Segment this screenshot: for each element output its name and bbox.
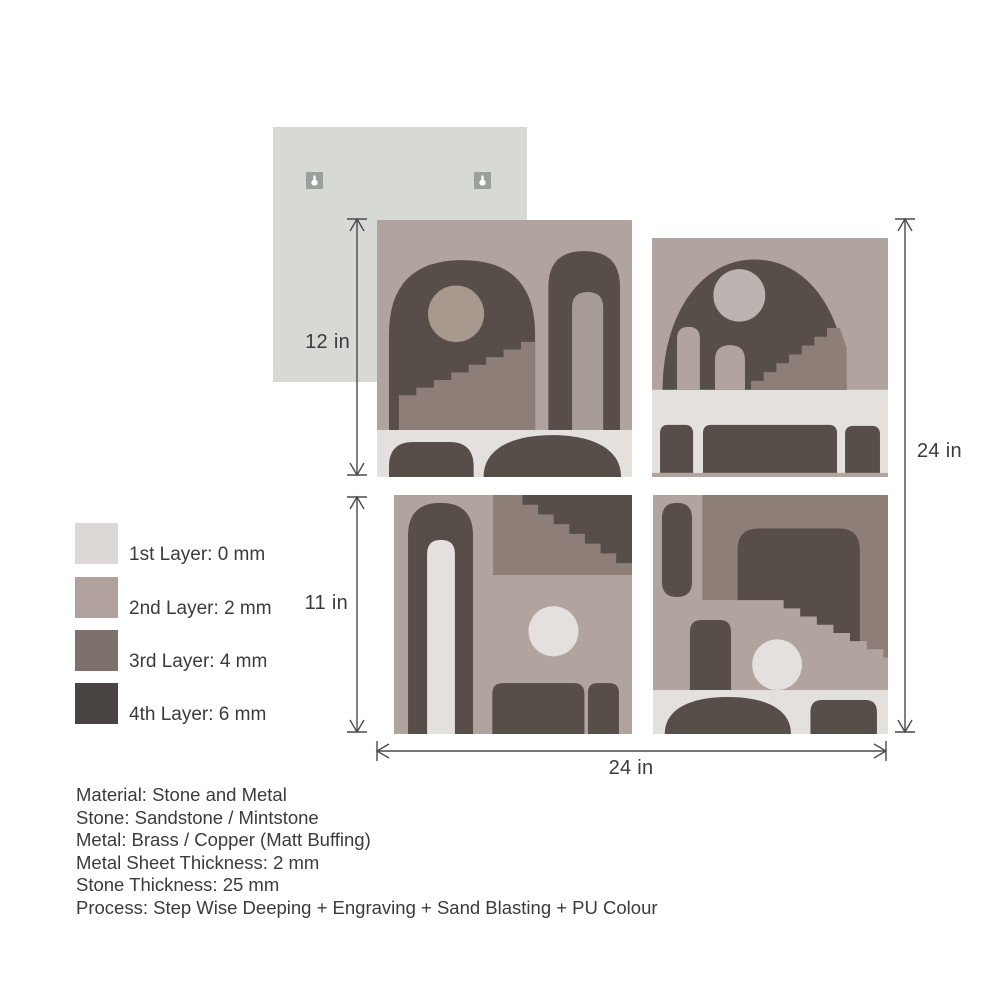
spec-line-stone-thickness: Stone Thickness: 25 mm: [76, 874, 658, 897]
product-spec-diagram: 12 in 11 in 24 in 24 in 1st Layer: 0 mm …: [0, 0, 1000, 1000]
legend-item: 2nd Layer: 2 mm: [75, 577, 272, 618]
legend-swatch-layer4: [75, 683, 118, 724]
wall-hook-icon: [306, 172, 323, 189]
legend-swatch-layer1: [75, 523, 118, 564]
legend-item: 3rd Layer: 4 mm: [75, 630, 267, 671]
dimension-arrow-24in-height: [895, 219, 915, 732]
legend-label: 1st Layer: 0 mm: [129, 545, 265, 566]
keyhole-icon: [474, 172, 491, 189]
legend-label: 3rd Layer: 4 mm: [129, 652, 267, 673]
legend-swatch-layer3: [75, 630, 118, 671]
dim-label-12in: 12 in: [305, 331, 350, 354]
legend-swatch-layer2: [75, 577, 118, 618]
keyhole-icon: [306, 172, 323, 189]
artwork-tile-top-right: [652, 238, 888, 477]
artwork-tile-top-left: [377, 220, 632, 477]
legend-item: 4th Layer: 6 mm: [75, 683, 266, 724]
legend-label: 4th Layer: 6 mm: [129, 705, 266, 726]
spec-line-metal: Metal: Brass / Copper (Matt Buffing): [76, 829, 658, 852]
artwork-tile-bottom-left: [394, 495, 632, 734]
spec-line-stone: Stone: Sandstone / Mintstone: [76, 807, 658, 830]
artwork-tile-bottom-right: [653, 495, 888, 734]
spec-line-metal-thickness: Metal Sheet Thickness: 2 mm: [76, 852, 658, 875]
spec-text-block: Material: Stone and Metal Stone: Sandsto…: [76, 784, 658, 920]
legend-label: 2nd Layer: 2 mm: [129, 599, 272, 620]
wall-hook-icon: [474, 172, 491, 189]
legend-item: 1st Layer: 0 mm: [75, 523, 265, 564]
spec-line-material: Material: Stone and Metal: [76, 784, 658, 807]
dim-label-24in-width: 24 in: [609, 757, 654, 780]
dimension-arrow-11in: [347, 497, 367, 732]
dim-label-11in: 11 in: [305, 592, 348, 615]
spec-line-process: Process: Step Wise Deeping + Engraving +…: [76, 897, 658, 920]
dim-label-24in-height: 24 in: [917, 440, 962, 463]
